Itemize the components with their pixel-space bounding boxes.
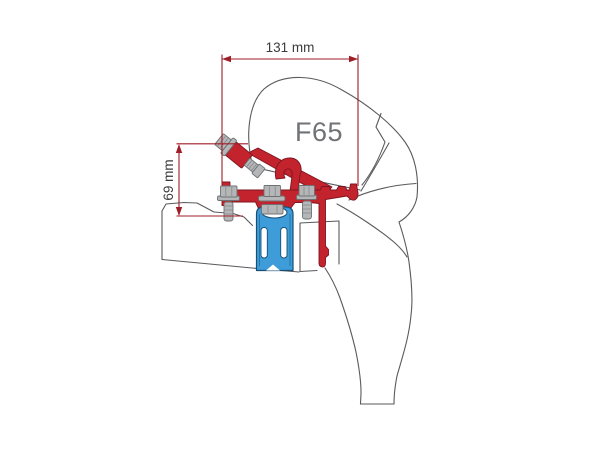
dimension-width-label: 131 mm <box>266 40 315 55</box>
diagram-canvas: 131 mm 69 mm F65 <box>0 0 610 450</box>
product-label: F65 <box>295 117 343 147</box>
awning-arm-outline <box>325 222 412 404</box>
awning-adapter-diagram: 131 mm 69 mm F65 <box>0 0 610 450</box>
clamp-slot-right <box>281 228 287 259</box>
clamp-slot-left <box>261 228 267 259</box>
dimension-height-label: 69 mm <box>161 159 176 200</box>
roof-clamp-blue <box>257 207 294 271</box>
